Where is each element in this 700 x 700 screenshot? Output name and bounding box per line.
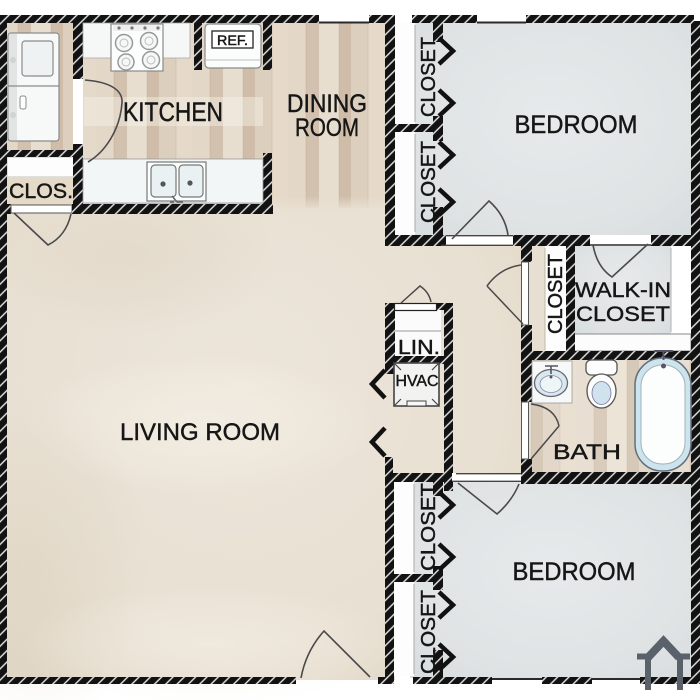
svg-text:BEDROOM: BEDROOM	[513, 558, 636, 586]
svg-text:CLOSET: CLOSET	[418, 483, 440, 571]
svg-text:CLOSET: CLOSET	[418, 141, 440, 223]
svg-text:CLOSET: CLOSET	[576, 302, 670, 326]
svg-text:HVAC: HVAC	[396, 373, 439, 390]
svg-text:CLOSET: CLOSET	[418, 590, 440, 674]
svg-text:BEDROOM: BEDROOM	[515, 111, 638, 139]
svg-text:ROOM: ROOM	[295, 114, 359, 142]
svg-text:REF.: REF.	[217, 33, 248, 48]
svg-text:KITCHEN: KITCHEN	[123, 97, 223, 127]
svg-text:LIVING ROOM: LIVING ROOM	[120, 419, 280, 446]
svg-text:CLOSET: CLOSET	[545, 254, 567, 334]
svg-text:WALK-IN: WALK-IN	[575, 278, 671, 302]
svg-text:BATH: BATH	[553, 440, 621, 464]
svg-text:LIN.: LIN.	[398, 336, 440, 359]
svg-text:CLOS.: CLOS.	[9, 180, 73, 203]
svg-text:CLOSET: CLOSET	[418, 37, 440, 117]
